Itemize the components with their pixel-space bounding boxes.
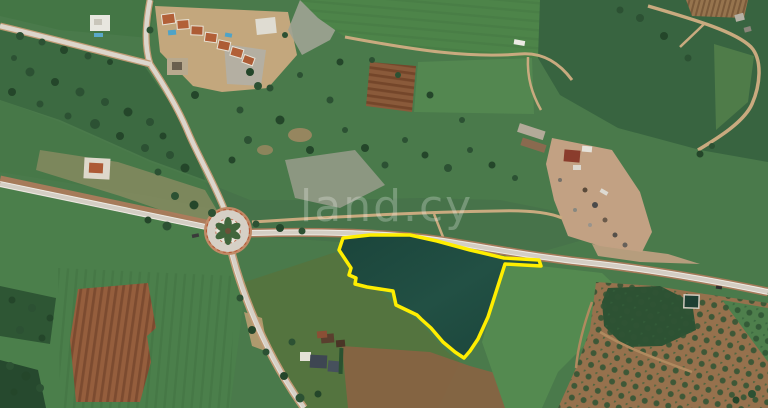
tree xyxy=(253,221,260,228)
watermark-text: land.cy xyxy=(300,181,473,232)
house-orange-roof xyxy=(191,26,203,35)
roundabout-flower-center xyxy=(225,228,231,234)
farm-junk xyxy=(558,178,562,182)
tree xyxy=(171,192,179,200)
tree xyxy=(289,339,296,346)
tree xyxy=(9,297,16,304)
terracotta-patch xyxy=(317,331,328,339)
tree xyxy=(101,98,109,106)
farm-container xyxy=(582,146,592,153)
tree xyxy=(337,59,344,66)
tree xyxy=(296,394,305,403)
tree xyxy=(427,92,434,99)
tree xyxy=(254,82,262,90)
house-orange-roof xyxy=(204,32,217,43)
tree xyxy=(36,384,44,392)
tree xyxy=(512,175,518,181)
tree xyxy=(395,72,401,78)
village-parking xyxy=(224,44,266,86)
tree xyxy=(382,162,389,169)
tree xyxy=(166,151,174,159)
tree xyxy=(47,315,54,322)
farm-junk xyxy=(592,202,598,208)
swimming-pool xyxy=(94,33,103,37)
tree xyxy=(237,107,244,114)
tree xyxy=(276,116,285,125)
farm-container xyxy=(573,165,581,170)
farm-junk xyxy=(573,208,577,212)
farm-junk xyxy=(603,218,608,223)
tree xyxy=(276,224,284,232)
tree xyxy=(26,68,35,77)
tree xyxy=(11,55,17,61)
tree xyxy=(459,117,465,123)
tree xyxy=(16,32,24,40)
tree xyxy=(146,118,154,126)
tree xyxy=(37,101,44,108)
white-house-bottom xyxy=(300,352,311,361)
tree xyxy=(124,108,133,117)
tree xyxy=(155,169,162,176)
tree xyxy=(315,391,322,398)
tree xyxy=(467,147,473,153)
tree xyxy=(11,389,18,396)
plowed-field-middle xyxy=(366,62,416,112)
tree xyxy=(160,133,167,140)
house-orange-roof xyxy=(177,20,190,30)
field-middle-bright xyxy=(414,58,534,114)
dirt-spot xyxy=(288,128,312,142)
tree xyxy=(342,127,348,133)
satellite-map: land.cy xyxy=(0,0,768,408)
tree xyxy=(107,59,113,65)
tree xyxy=(191,91,199,99)
tree xyxy=(709,143,715,149)
courtyard-house-roof xyxy=(89,163,104,174)
tree xyxy=(85,53,92,60)
tree xyxy=(116,132,124,140)
tree xyxy=(244,136,252,144)
tree xyxy=(297,72,303,78)
white-building xyxy=(255,17,277,35)
tree xyxy=(163,222,172,231)
tree xyxy=(237,295,244,302)
tree xyxy=(90,119,100,129)
tree xyxy=(248,326,256,334)
tree xyxy=(76,88,85,97)
tree xyxy=(39,335,46,342)
tree xyxy=(8,88,16,96)
tree xyxy=(369,57,375,63)
tree xyxy=(145,217,152,224)
tree xyxy=(181,164,190,173)
dirt-spot xyxy=(257,145,273,155)
tree xyxy=(16,326,24,334)
construction-detail xyxy=(172,62,182,70)
farm-junk xyxy=(583,188,588,193)
tree xyxy=(327,97,334,104)
tree xyxy=(422,152,429,159)
tree xyxy=(246,68,254,76)
dark-soil-patch xyxy=(336,340,346,348)
tree xyxy=(361,144,369,152)
tree xyxy=(636,14,644,22)
tree xyxy=(190,201,199,210)
tree xyxy=(28,304,36,312)
orchard-pond xyxy=(684,295,699,309)
tree xyxy=(208,209,216,217)
tree xyxy=(267,85,274,92)
tree xyxy=(22,372,31,381)
tree xyxy=(280,372,288,380)
tree xyxy=(402,137,408,143)
satellite-map-view: land.cy xyxy=(0,0,768,408)
tree xyxy=(306,146,314,154)
tree xyxy=(147,27,154,34)
tree xyxy=(65,113,72,120)
farm-junk xyxy=(623,243,628,248)
tree xyxy=(51,78,59,86)
tree xyxy=(444,164,452,172)
tree xyxy=(60,46,68,54)
tree xyxy=(263,349,270,356)
swimming-pool xyxy=(168,30,176,36)
tree xyxy=(229,157,236,164)
tree xyxy=(733,397,740,404)
house-orange-roof xyxy=(161,13,175,25)
tree xyxy=(39,39,46,46)
plowed-field-bottom-left xyxy=(70,283,156,402)
white-villa-detail xyxy=(94,19,102,25)
house-orange-roof xyxy=(217,40,231,51)
tree xyxy=(748,390,756,398)
tree xyxy=(697,151,704,158)
farm-junk xyxy=(613,233,618,238)
farm-red-roof-building xyxy=(564,149,581,162)
tree xyxy=(282,32,288,38)
tree xyxy=(489,162,496,169)
farm-junk xyxy=(588,223,592,227)
tree xyxy=(660,32,668,40)
dark-roof-building xyxy=(310,355,328,369)
tree xyxy=(685,55,692,62)
tree xyxy=(617,7,624,14)
tree xyxy=(6,362,14,370)
tree xyxy=(141,144,149,152)
